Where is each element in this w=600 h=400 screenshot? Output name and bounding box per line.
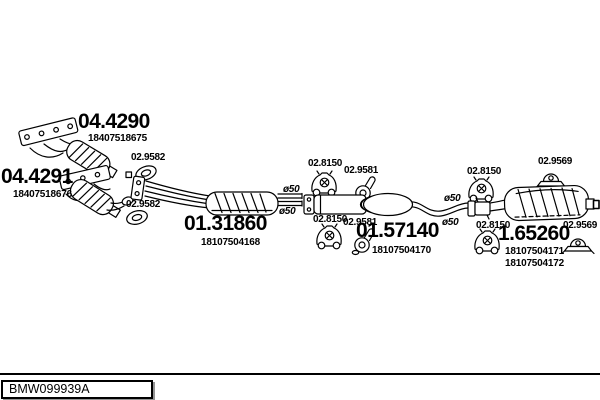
part-oem-1: 18407518676 — [13, 190, 72, 200]
joint-marker — [126, 172, 132, 178]
part-code-1: 04.4291 — [1, 166, 73, 187]
fitting-code-hanger: 02.8150 — [467, 167, 501, 177]
pipe-diameter-label: ø50 — [279, 207, 295, 217]
fitting-code-gasket: 02.9582 — [131, 153, 165, 163]
part-oem-4a: 18107504171 — [505, 247, 564, 257]
footer-divider — [0, 373, 600, 375]
part-code-2: 01.31860 — [184, 213, 267, 234]
rubber-hanger-icon — [312, 171, 336, 196]
fitting-code-gasket: 02.9582 — [126, 200, 160, 210]
fitting-code-center-mount: 02.9581 — [344, 166, 378, 176]
tailpipe-tip-marker — [594, 201, 600, 209]
pipe-diameter-label: ø50 — [442, 218, 458, 228]
part-oem-3: 18107504170 — [372, 246, 431, 256]
rubber-hanger-icon — [469, 177, 493, 202]
part-oem-2: 18107504168 — [201, 238, 260, 248]
drawing-number-box: BMW099939A — [1, 380, 153, 399]
exhaust-parts-diagram: 04.4290 04.4291 01.31860 01.57140 1.6526… — [0, 0, 600, 400]
fitting-code-hanger: 02.8150 — [313, 215, 347, 225]
diagram-line-art — [0, 0, 600, 400]
gasket-icon — [125, 209, 149, 227]
rubber-hanger-icon — [475, 229, 499, 254]
fitting-code-hanger: 02.8150 — [308, 159, 342, 169]
part-code-0: 04.4290 — [78, 111, 150, 132]
pipe-diameter-label: ø50 — [444, 194, 460, 204]
drawing-number: BMW099939A — [9, 382, 90, 396]
part-oem-4b: 18107504172 — [505, 259, 564, 269]
rubber-hanger-icon — [317, 224, 341, 249]
fitting-code-rear-mount: 02.9569 — [563, 221, 597, 231]
fitting-code-rear-mount: 02.9569 — [538, 157, 572, 167]
part-oem-0: 18407518675 — [88, 134, 147, 144]
pipe-diameter-label: ø50 — [283, 185, 299, 195]
fitting-code-center-mount: 02.9581 — [343, 218, 377, 228]
fitting-code-hanger: 02.8150 — [476, 221, 510, 231]
